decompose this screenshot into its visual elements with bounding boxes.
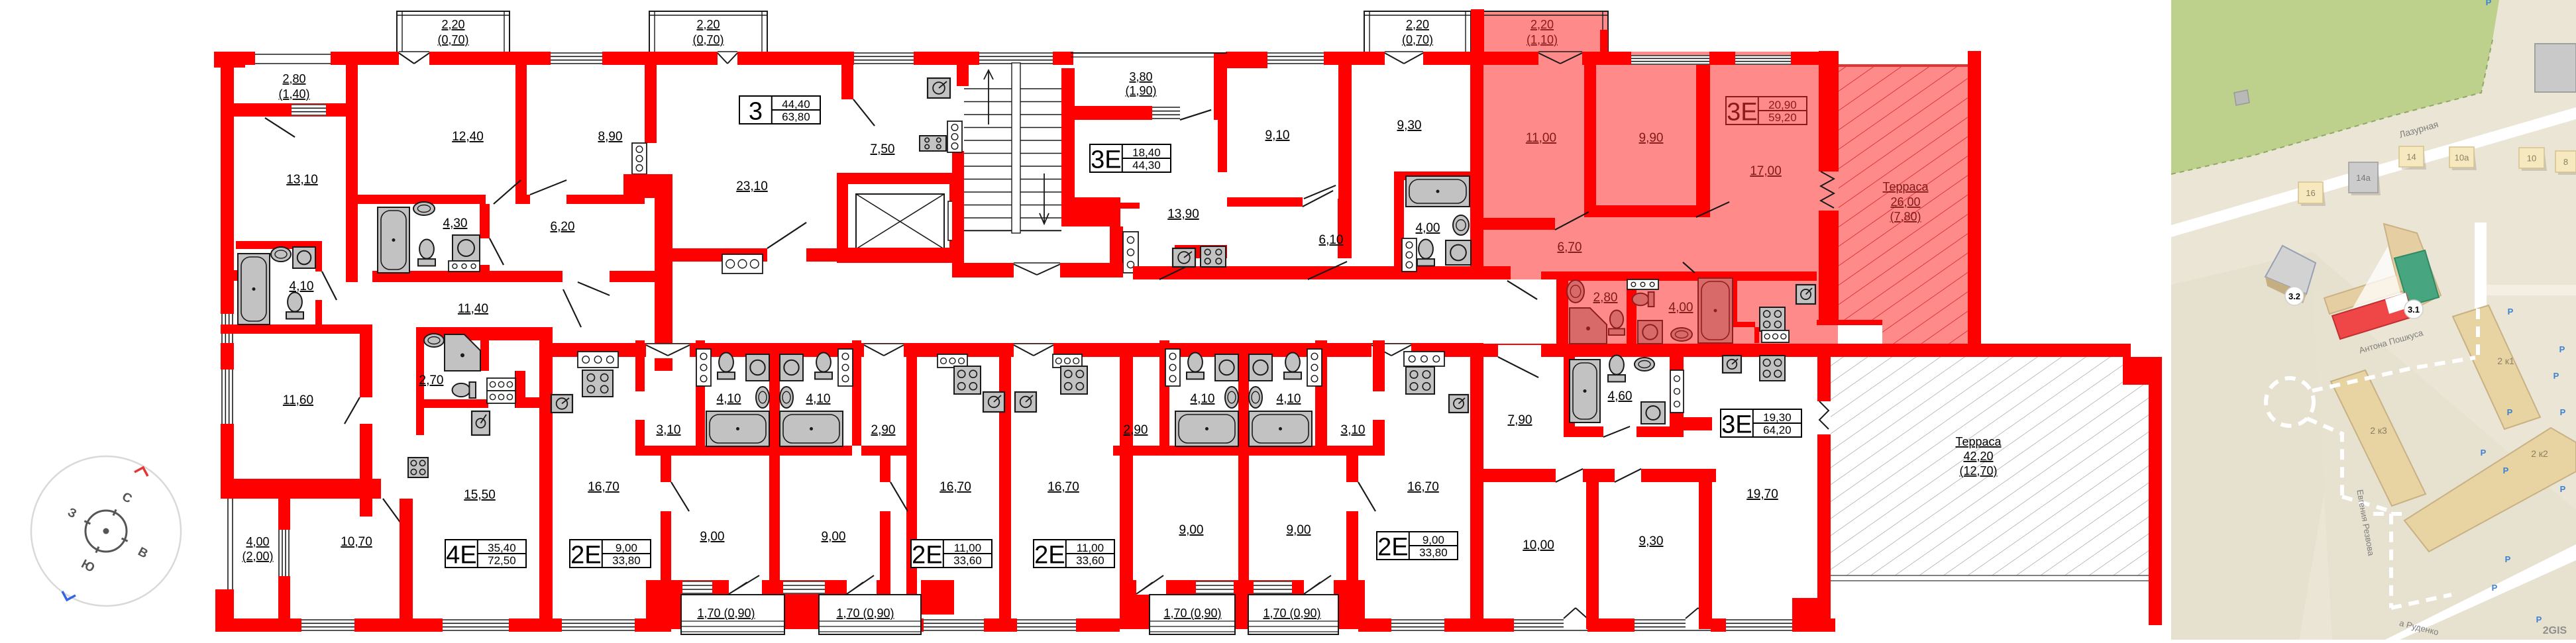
svg-text:35,40: 35,40 <box>488 542 516 554</box>
svg-text:P: P <box>2486 0 2492 7</box>
svg-text:4,00: 4,00 <box>1416 221 1440 235</box>
svg-text:4,10: 4,10 <box>1277 392 1301 406</box>
svg-text:11,00: 11,00 <box>1526 131 1556 145</box>
svg-text:8,90: 8,90 <box>598 130 623 144</box>
svg-text:9,90: 9,90 <box>1639 131 1664 145</box>
svg-text:4,30: 4,30 <box>443 217 468 230</box>
svg-text:26,00: 26,00 <box>1890 195 1920 209</box>
svg-text:3Е: 3Е <box>1721 411 1752 438</box>
svg-text:4,10: 4,10 <box>717 392 741 406</box>
svg-text:11,60: 11,60 <box>283 393 313 407</box>
svg-text:3,80: 3,80 <box>1129 70 1152 83</box>
svg-text:59,20: 59,20 <box>1768 111 1797 124</box>
svg-text:64,20: 64,20 <box>1763 424 1792 436</box>
svg-text:1,70 (0,90): 1,70 (0,90) <box>836 607 894 620</box>
svg-text:16: 16 <box>2306 188 2315 198</box>
svg-text:72,50: 72,50 <box>488 554 516 567</box>
svg-text:10,70: 10,70 <box>341 535 372 549</box>
svg-text:42,20: 42,20 <box>1963 450 1993 463</box>
svg-text:9,00: 9,00 <box>1422 534 1444 546</box>
svg-text:2,20: 2,20 <box>1530 18 1554 31</box>
svg-text:4,00: 4,00 <box>1669 301 1693 315</box>
svg-text:(0,70): (0,70) <box>1402 33 1433 46</box>
svg-text:P: P <box>2536 615 2542 624</box>
svg-text:4Е: 4Е <box>446 541 476 569</box>
svg-text:14а: 14а <box>2356 173 2371 183</box>
svg-text:9,00: 9,00 <box>1287 523 1311 537</box>
svg-text:11,00: 11,00 <box>1077 542 1104 554</box>
svg-text:17,00: 17,00 <box>1750 164 1782 178</box>
svg-text:3.2: 3.2 <box>2288 291 2300 301</box>
svg-text:3,10: 3,10 <box>657 423 681 437</box>
svg-text:3,10: 3,10 <box>1341 423 1366 437</box>
svg-text:2GIS: 2GIS <box>2543 625 2567 636</box>
svg-text:3Е: 3Е <box>1727 98 1757 126</box>
svg-text:2,20: 2,20 <box>696 18 720 31</box>
svg-text:(1,10): (1,10) <box>1527 33 1558 46</box>
svg-text:P: P <box>2560 407 2566 417</box>
svg-text:4,10: 4,10 <box>290 279 314 293</box>
svg-text:3.1: 3.1 <box>2408 305 2420 315</box>
svg-text:11,40: 11,40 <box>458 302 488 316</box>
svg-text:8: 8 <box>2563 157 2568 167</box>
svg-text:9,30: 9,30 <box>1639 534 1664 548</box>
svg-text:2,80: 2,80 <box>282 72 305 85</box>
svg-text:9,00: 9,00 <box>616 542 637 554</box>
svg-text:7,50: 7,50 <box>871 142 895 156</box>
svg-text:15,50: 15,50 <box>464 488 496 502</box>
svg-text:2,80: 2,80 <box>1593 291 1618 305</box>
svg-text:P: P <box>2508 307 2514 317</box>
svg-text:10,00: 10,00 <box>1523 538 1554 552</box>
svg-text:9,00: 9,00 <box>1179 523 1204 537</box>
svg-text:2Е: 2Е <box>1377 533 1408 561</box>
svg-text:1,70 (0,90): 1,70 (0,90) <box>1163 607 1221 620</box>
svg-text:(2,00): (2,00) <box>242 550 273 563</box>
svg-text:P: P <box>2507 407 2513 417</box>
svg-text:P: P <box>2560 484 2566 494</box>
svg-text:Терраса: Терраса <box>1955 435 2002 448</box>
svg-text:16,70: 16,70 <box>1047 480 1079 494</box>
svg-text:(12,70): (12,70) <box>1959 464 1997 477</box>
svg-text:33,60: 33,60 <box>1076 554 1104 567</box>
svg-text:(0,70): (0,70) <box>692 33 724 46</box>
svg-text:33,80: 33,80 <box>612 554 641 567</box>
svg-text:2,20: 2,20 <box>1406 18 1429 31</box>
svg-text:2,20: 2,20 <box>441 18 464 31</box>
svg-text:Терраса: Терраса <box>1882 180 1929 193</box>
svg-text:19,30: 19,30 <box>1763 411 1792 424</box>
svg-text:9,00: 9,00 <box>700 530 725 544</box>
svg-text:4,00: 4,00 <box>246 535 269 548</box>
svg-text:9,30: 9,30 <box>1397 119 1422 132</box>
svg-text:3Е: 3Е <box>1091 146 1121 173</box>
svg-text:63,80: 63,80 <box>782 111 810 123</box>
svg-text:P: P <box>2559 344 2565 354</box>
svg-text:10а: 10а <box>2455 153 2469 163</box>
svg-text:44,30: 44,30 <box>1132 159 1161 172</box>
svg-text:2 к3: 2 к3 <box>2370 425 2387 436</box>
svg-text:(0,70): (0,70) <box>437 33 468 46</box>
svg-text:7,90: 7,90 <box>1508 413 1532 427</box>
svg-text:9,10: 9,10 <box>1265 128 1290 142</box>
svg-text:13,10: 13,10 <box>286 173 318 187</box>
svg-text:P: P <box>2492 583 2498 593</box>
svg-text:12,40: 12,40 <box>452 130 484 144</box>
svg-text:4,10: 4,10 <box>1191 392 1215 406</box>
svg-text:16,70: 16,70 <box>1407 480 1439 494</box>
svg-text:P: P <box>2553 371 2559 381</box>
svg-text:19,70: 19,70 <box>1746 487 1778 501</box>
svg-text:(1,40): (1,40) <box>278 87 309 101</box>
svg-text:6,10: 6,10 <box>1319 233 1344 247</box>
svg-text:2 к1: 2 к1 <box>2497 356 2514 366</box>
svg-text:2Е: 2Е <box>1034 541 1065 569</box>
svg-text:44,40: 44,40 <box>782 98 810 111</box>
svg-text:6,70: 6,70 <box>1558 240 1582 254</box>
svg-text:16,70: 16,70 <box>588 480 619 494</box>
svg-text:1,70 (0,90): 1,70 (0,90) <box>697 607 755 620</box>
svg-text:33,60: 33,60 <box>953 554 982 567</box>
svg-text:1,70 (0,90): 1,70 (0,90) <box>1263 607 1320 620</box>
svg-text:13,90: 13,90 <box>1167 207 1199 221</box>
svg-text:3: 3 <box>749 97 763 125</box>
svg-text:(1,90): (1,90) <box>1125 84 1156 97</box>
svg-text:11,00: 11,00 <box>954 542 981 554</box>
svg-text:P: P <box>2505 554 2511 564</box>
svg-text:P: P <box>2503 466 2509 475</box>
svg-text:2,90: 2,90 <box>1124 423 1148 437</box>
svg-text:23,10: 23,10 <box>736 179 768 193</box>
svg-text:4,10: 4,10 <box>806 392 831 406</box>
svg-text:33,80: 33,80 <box>1419 546 1448 559</box>
svg-text:6,20: 6,20 <box>551 220 575 234</box>
svg-text:16,70: 16,70 <box>939 480 971 494</box>
svg-text:4,60: 4,60 <box>1608 389 1633 403</box>
svg-text:2Е: 2Е <box>570 541 601 569</box>
svg-text:9,00: 9,00 <box>822 530 846 544</box>
svg-text:18,40: 18,40 <box>1132 146 1161 159</box>
svg-text:2 к2: 2 к2 <box>2531 448 2548 459</box>
svg-text:20,90: 20,90 <box>1768 99 1797 111</box>
svg-text:14: 14 <box>2406 152 2416 162</box>
svg-text:(7,80): (7,80) <box>1890 210 1921 223</box>
svg-text:2,90: 2,90 <box>871 423 896 437</box>
svg-text:10: 10 <box>2527 154 2536 164</box>
svg-text:P: P <box>2481 448 2487 458</box>
svg-text:2Е: 2Е <box>912 541 942 569</box>
svg-text:2,70: 2,70 <box>419 373 444 387</box>
